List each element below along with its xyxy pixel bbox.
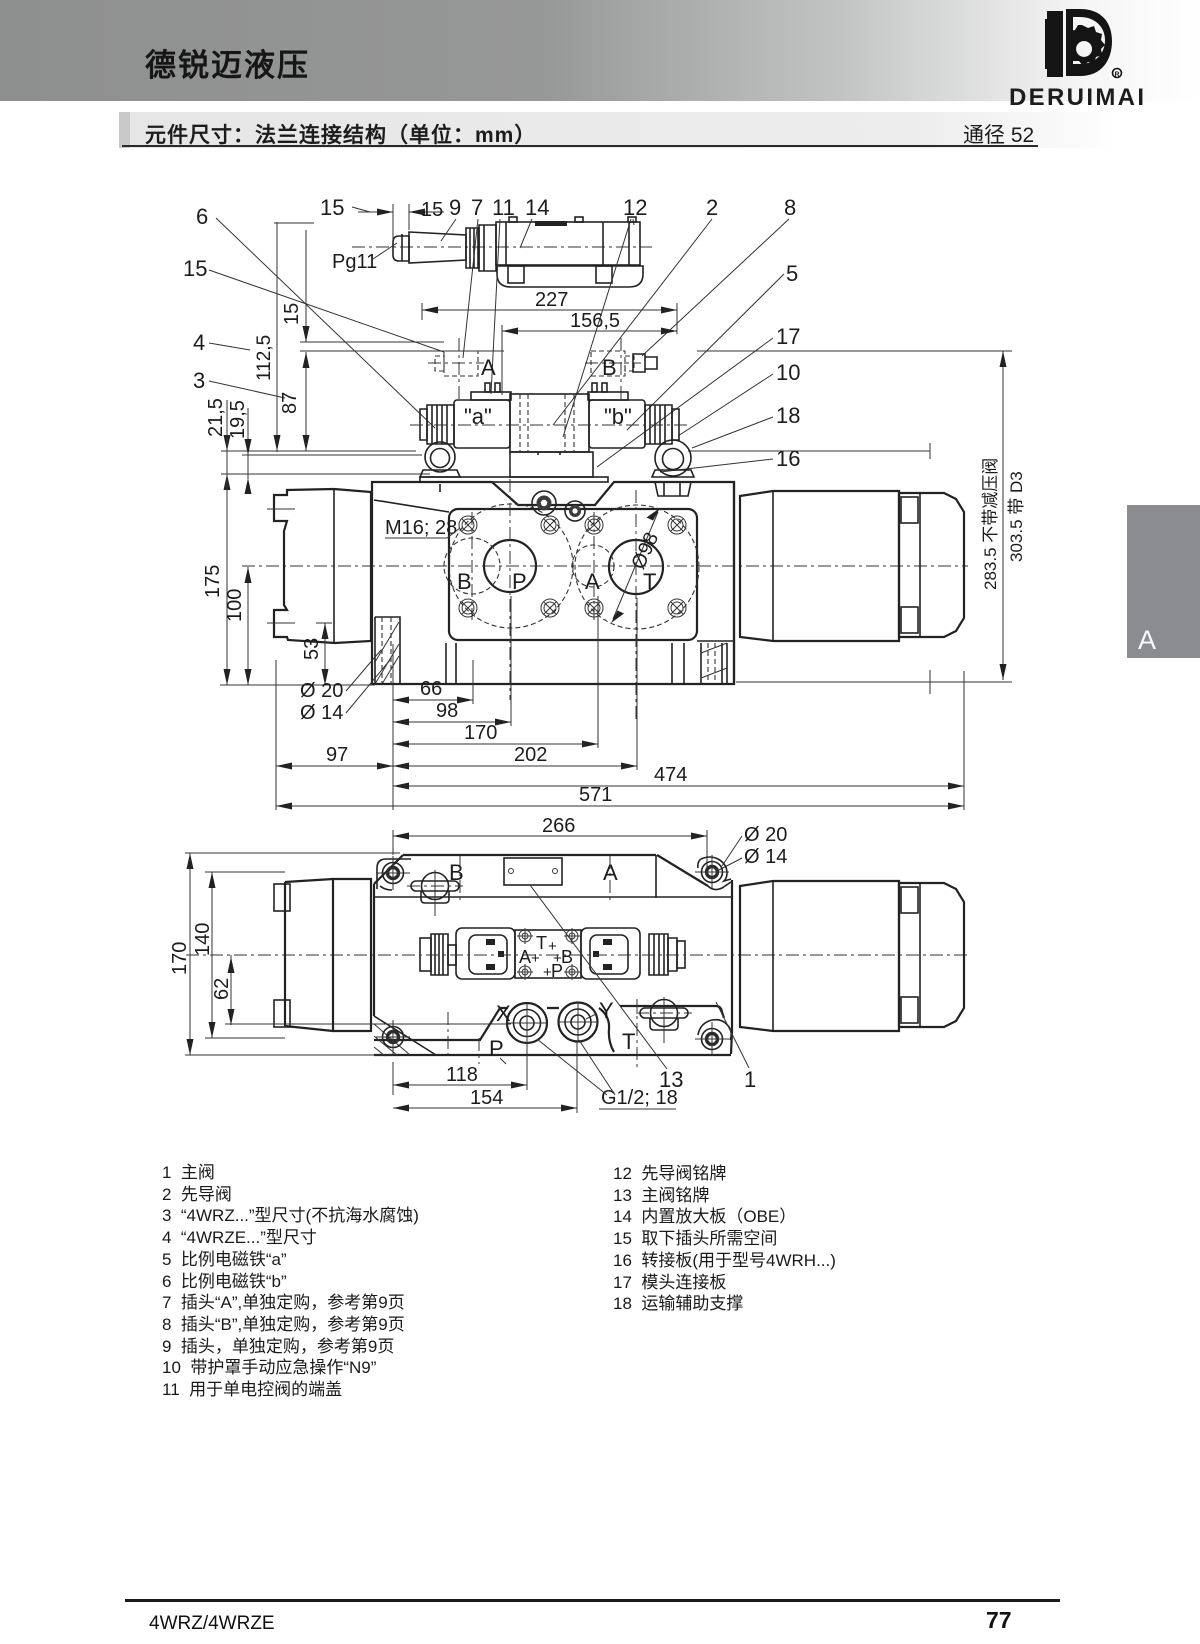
svg-text:98: 98	[436, 700, 458, 722]
svg-text:154: 154	[470, 1087, 503, 1109]
svg-text:170: 170	[169, 942, 191, 975]
svg-text:156,5: 156,5	[570, 310, 620, 332]
svg-text:B: B	[457, 569, 472, 594]
svg-text:19,5: 19,5	[227, 400, 249, 439]
svg-text:T: T	[643, 569, 656, 594]
svg-text:66: 66	[420, 678, 442, 700]
svg-text:170: 170	[464, 722, 497, 744]
svg-text:15: 15	[183, 256, 207, 281]
svg-text:12: 12	[623, 195, 647, 220]
svg-text:Ø 20: Ø 20	[300, 680, 343, 702]
svg-text:18: 18	[776, 403, 800, 428]
svg-text:A: A	[585, 569, 600, 594]
svg-text:M16; 28: M16; 28	[385, 517, 457, 539]
svg-text:Pg11: Pg11	[332, 251, 377, 273]
svg-text:10: 10	[776, 360, 800, 385]
svg-text:266: 266	[542, 815, 575, 837]
svg-text:571: 571	[579, 784, 612, 806]
svg-text:202: 202	[514, 744, 547, 766]
svg-text:303.5 带 D3: 303.5 带 D3	[1007, 471, 1026, 562]
svg-text:8: 8	[784, 195, 796, 220]
svg-text:A: A	[481, 355, 496, 380]
svg-text:15: 15	[421, 199, 443, 221]
svg-text:14: 14	[525, 195, 549, 220]
svg-text:17: 17	[776, 324, 800, 349]
svg-text:4: 4	[193, 330, 205, 355]
svg-text:P: P	[489, 1036, 504, 1061]
svg-text:X: X	[496, 1001, 511, 1026]
svg-text:3: 3	[193, 368, 205, 393]
svg-text:P: P	[551, 961, 563, 981]
svg-text:21,5: 21,5	[205, 398, 227, 437]
svg-text:13: 13	[659, 1067, 683, 1092]
svg-text:175: 175	[202, 565, 224, 598]
svg-text:A: A	[519, 947, 531, 967]
svg-text:1: 1	[744, 1067, 756, 1092]
svg-text:9: 9	[449, 195, 461, 220]
svg-text:16: 16	[776, 446, 800, 471]
svg-text:112,5: 112,5	[254, 335, 275, 381]
svg-text:+: +	[531, 950, 540, 967]
svg-text:97: 97	[326, 744, 348, 766]
svg-text:227: 227	[535, 289, 568, 311]
svg-text:474: 474	[654, 764, 687, 786]
svg-text:Ø 14: Ø 14	[300, 702, 343, 724]
svg-text:283.5 不带减压阀: 283.5 不带减压阀	[981, 458, 1000, 590]
svg-text:T: T	[622, 1029, 635, 1054]
svg-text:62: 62	[211, 978, 233, 1000]
svg-text:100: 100	[224, 589, 246, 622]
svg-text:Ø 20: Ø 20	[744, 824, 787, 846]
svg-text:Ø 14: Ø 14	[744, 846, 787, 868]
svg-text:15: 15	[281, 303, 303, 325]
svg-text:11: 11	[492, 195, 515, 220]
svg-text:15: 15	[320, 195, 344, 220]
svg-text:5: 5	[786, 261, 798, 286]
svg-text:118: 118	[446, 1064, 478, 1086]
svg-text:53: 53	[301, 638, 323, 660]
svg-text:7: 7	[471, 195, 483, 220]
svg-text:B: B	[602, 355, 617, 380]
svg-text:140: 140	[192, 923, 214, 956]
svg-text:Y: Y	[599, 998, 614, 1023]
svg-text:P: P	[512, 569, 527, 594]
svg-text:6: 6	[196, 204, 208, 229]
svg-text:2: 2	[706, 195, 718, 220]
svg-text:87: 87	[279, 392, 301, 414]
